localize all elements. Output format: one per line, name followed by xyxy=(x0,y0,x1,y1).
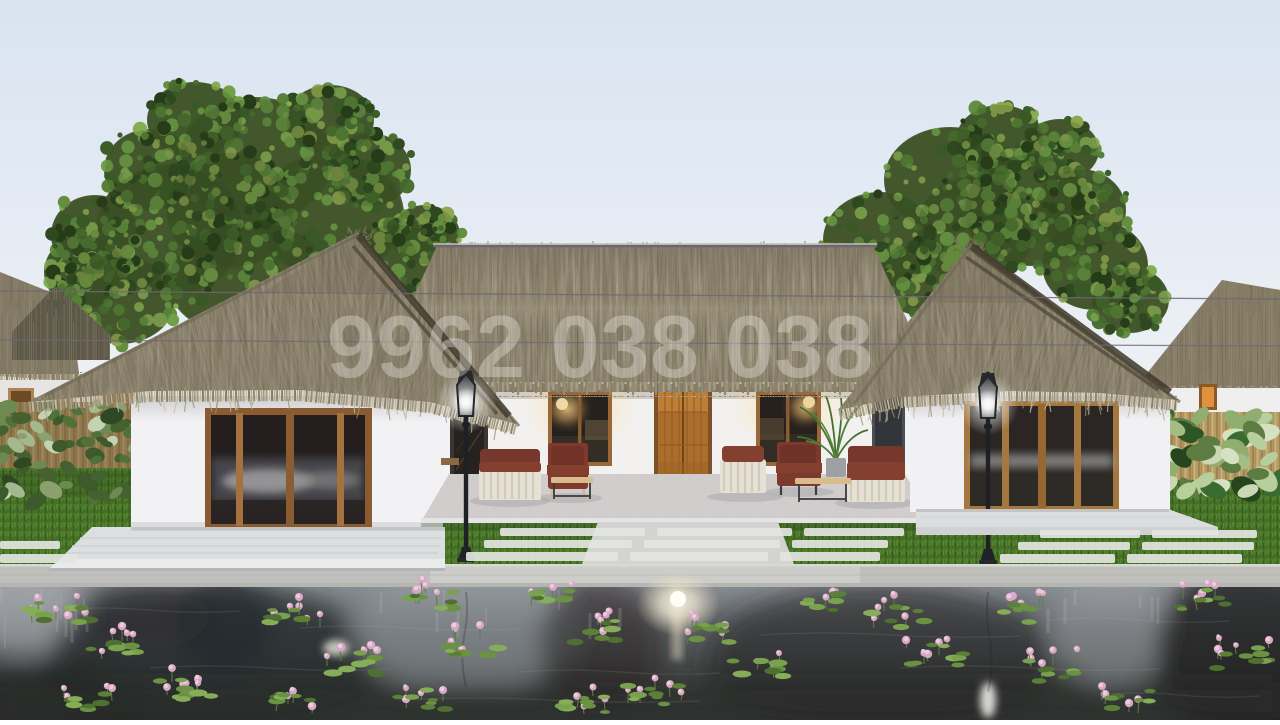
svg-text:9962 038 038: 9962 038 038 xyxy=(327,297,873,396)
